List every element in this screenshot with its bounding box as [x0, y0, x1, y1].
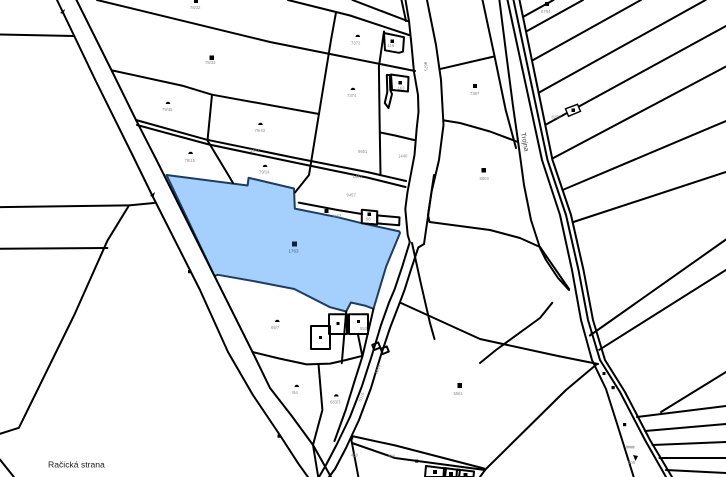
svg-text:79/14: 79/14 — [259, 170, 270, 175]
svg-text:116: 116 — [388, 43, 395, 48]
svg-text:1463: 1463 — [332, 214, 342, 219]
svg-text:683/3: 683/3 — [330, 400, 341, 405]
svg-text:78/32: 78/32 — [190, 5, 201, 10]
svg-text:7387: 7387 — [470, 91, 480, 96]
svg-text:8003: 8003 — [480, 176, 490, 181]
svg-text:9651: 9651 — [358, 149, 368, 154]
svg-text:5561: 5561 — [454, 391, 464, 396]
svg-text:484: 484 — [388, 454, 396, 459]
svg-text:608: 608 — [628, 460, 636, 465]
svg-text:69/7: 69/7 — [271, 325, 280, 330]
svg-text:553: 553 — [360, 326, 368, 331]
svg-text:9671: 9671 — [423, 62, 429, 72]
svg-text:Račická strana: Račická strana — [48, 460, 105, 470]
svg-text:9457: 9457 — [347, 193, 357, 198]
svg-text:1440: 1440 — [398, 154, 408, 159]
svg-text:96: 96 — [366, 217, 371, 222]
svg-text:79/45: 79/45 — [162, 107, 173, 112]
svg-text:/94: /94 — [292, 390, 298, 395]
svg-text:7372: 7372 — [351, 41, 361, 46]
svg-text:7374: 7374 — [347, 93, 357, 98]
svg-text:6764: 6764 — [541, 9, 551, 14]
svg-text:459: 459 — [351, 453, 359, 458]
svg-text:79/43: 79/43 — [255, 128, 266, 133]
svg-text:1763: 1763 — [289, 249, 300, 254]
svg-text:79/15: 79/15 — [185, 158, 196, 163]
svg-text:78/33: 78/33 — [205, 60, 216, 65]
svg-text:1441: 1441 — [250, 148, 260, 153]
svg-text:163: 163 — [398, 86, 406, 91]
svg-text:1440: 1440 — [353, 174, 363, 179]
svg-text:8257: 8257 — [552, 115, 562, 120]
